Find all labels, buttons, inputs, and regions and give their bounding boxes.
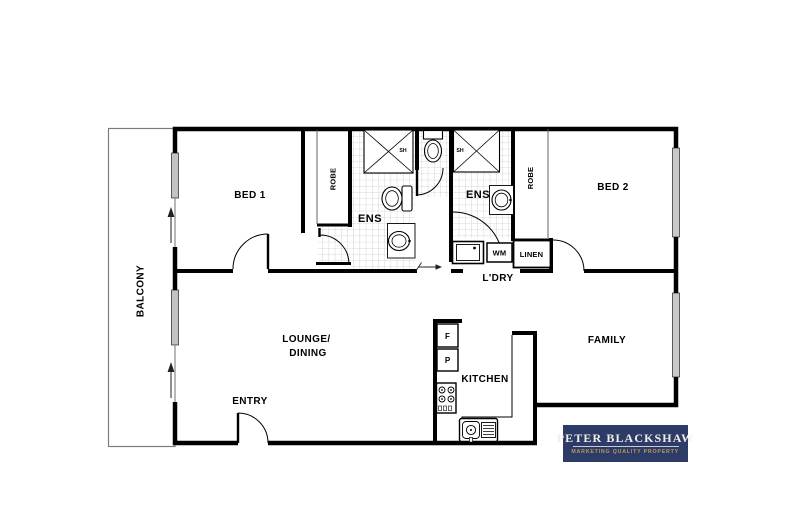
slide-arrow-top	[168, 207, 175, 243]
shower2-label: SH	[456, 148, 463, 154]
ens1-toilet-icon	[382, 186, 412, 211]
balcony-label: BALCONY	[136, 265, 147, 317]
robe1-label: ROBE	[329, 168, 338, 190]
fridge-label: F	[445, 332, 450, 341]
linen-label: LINEN	[520, 250, 544, 259]
family-window	[673, 293, 680, 377]
entry-label: ENTRY	[232, 396, 268, 407]
family-label: FAMILY	[588, 335, 626, 346]
bed1-label: BED 1	[234, 190, 265, 201]
pantry-label: P	[445, 356, 451, 365]
floorplan-image: BALCONY BED 1 BED 2 ROBE ROBE ENS ENS SH…	[0, 0, 790, 527]
slide-arrow-bottom	[168, 362, 175, 398]
logo-name-text: PETER BLACKSHAW	[557, 432, 695, 444]
ens2-basin-icon	[490, 186, 514, 215]
bed2-door-arc	[553, 240, 584, 271]
bed1-door-arc	[233, 234, 268, 269]
balcony-slider-panel-bottom	[172, 290, 179, 345]
balcony-slider-panel-top	[172, 153, 179, 198]
kitchen-label: KITCHEN	[461, 374, 508, 385]
ens1-label: ENS	[358, 213, 382, 225]
bed2-window	[673, 148, 680, 237]
ens2-label: ENS	[466, 189, 490, 201]
lounge-label-line1: LOUNGE/	[282, 334, 330, 345]
logo-divider	[573, 446, 679, 447]
bed2-label: BED 2	[597, 182, 628, 193]
laundry-label: L'DRY	[482, 273, 513, 284]
lounge-label-line2: DINING	[289, 348, 326, 359]
sink-icon	[460, 419, 498, 443]
ens1-basin-icon	[388, 224, 416, 259]
washing-machine-label: WM	[493, 249, 507, 258]
robe2-label: ROBE	[526, 167, 535, 189]
ens1-lobby-tile-floor	[318, 227, 352, 265]
lounge-label: LOUNGE/ DINING	[282, 334, 334, 359]
stove-icon	[437, 383, 457, 413]
wc-toilet-icon	[424, 131, 443, 163]
peter-blackshaw-logo: PETER BLACKSHAW MARKETING QUALITY PROPER…	[563, 425, 688, 462]
laundry-tub-icon	[453, 242, 484, 264]
logo-tagline-text: MARKETING QUALITY PROPERTY	[572, 450, 680, 455]
hall-entry-arrow	[416, 263, 443, 272]
entry-door-arc	[238, 413, 268, 443]
shower1-label: SH	[399, 148, 406, 154]
